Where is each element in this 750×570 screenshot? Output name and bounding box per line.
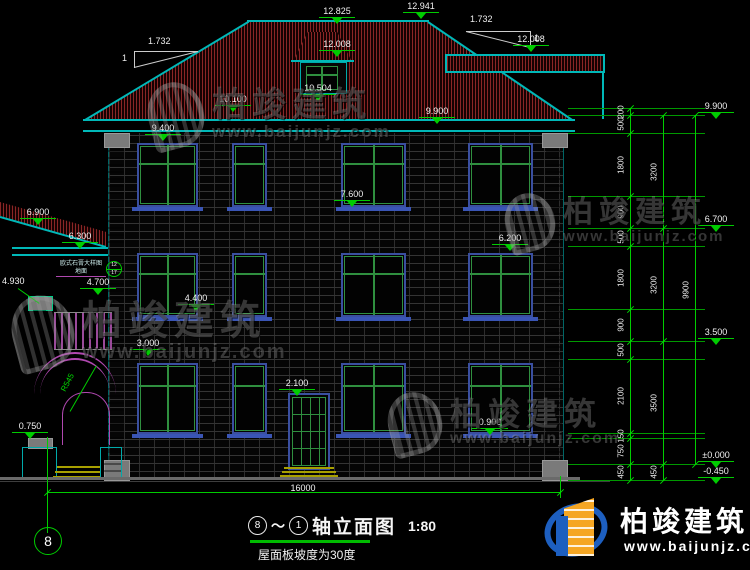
elevation-marker: 0.750	[12, 421, 48, 439]
elevation-value: 3.500	[698, 327, 734, 337]
elevation-marker: 12.825	[319, 6, 355, 24]
elevation-marker: 2.100	[279, 378, 315, 396]
title-axis-end-bubble: 1	[289, 516, 308, 535]
drawing-scale: 1:80	[408, 518, 436, 534]
elevation-value: ±0.000	[698, 450, 734, 460]
watermark-url: www.baijunjz.com	[82, 341, 287, 363]
marker-triangle-icon	[332, 18, 342, 24]
marker-triangle-icon	[332, 51, 342, 57]
watermark-url: www.baijunjz.com	[563, 228, 724, 245]
brand-logo-building-blue	[556, 516, 568, 556]
dim-extension-line	[568, 341, 705, 342]
elevation-value: 12.825	[319, 6, 355, 16]
dim-extension-line	[568, 480, 705, 481]
dim-value: 1800	[617, 156, 626, 174]
bottom-ext-right	[560, 476, 561, 498]
watermark: 柏竣建筑www.baijunjz.com	[388, 392, 620, 454]
brand-url: www.baijunjz.com	[624, 538, 750, 554]
elevation-value: 0.750	[12, 421, 48, 431]
watermark-logo-icon	[140, 76, 211, 154]
dim-value: 200	[617, 105, 626, 118]
dim-value: 3200	[650, 276, 659, 294]
elevation-marker: 6.300	[62, 231, 98, 249]
dim-extension-line	[568, 133, 705, 134]
watermark: 柏竣建筑www.baijunjz.com	[12, 295, 287, 369]
watermark-text: 柏竣建筑www.baijunjz.com	[563, 198, 724, 246]
marker-triangle-icon	[526, 46, 536, 52]
dim-extension-line	[568, 309, 705, 310]
watermark-url: www.baijunjz.com	[212, 122, 391, 141]
marker-triangle-icon	[711, 113, 721, 119]
elevation-value: 9.900	[419, 106, 455, 116]
dim-value: 450	[617, 465, 626, 478]
marker-triangle-icon	[25, 433, 35, 439]
elevation-value: 6.300	[62, 231, 98, 241]
watermark-name: 柏竣建筑	[82, 299, 266, 343]
watermark-logo-icon	[381, 386, 449, 460]
watermark-name: 柏竣建筑	[212, 86, 372, 124]
dim-extension-line	[568, 115, 705, 116]
marker-triangle-icon	[711, 339, 721, 345]
title-axis-start-bubble: 8	[248, 516, 267, 535]
elevation-value: 12.941	[403, 1, 439, 11]
dim-extension-line	[568, 108, 705, 109]
elevation-marker: 12.008	[319, 39, 355, 57]
elevation-value: 6.900	[20, 207, 56, 217]
elevation-drawing-canvas: R545 欧式石膏大样图 地面 12 17 4.930 1.732 1 1.73…	[0, 0, 750, 570]
watermark-text: 柏竣建筑www.baijunjz.com	[450, 398, 620, 448]
dim-chain-line	[695, 115, 696, 464]
watermark: 柏竣建筑www.baijunjz.com	[148, 82, 391, 148]
dim-value: 3500	[650, 394, 659, 412]
dim-extension-line	[568, 464, 705, 465]
dim-chain-line	[630, 108, 631, 480]
dim-value: 500	[617, 343, 626, 356]
elevation-value: 9.900	[698, 101, 734, 111]
marker-triangle-icon	[75, 243, 85, 249]
elevation-marker: 9.900	[419, 106, 455, 124]
brand-block: 柏竣建筑 www.baijunjz.com	[538, 494, 750, 568]
elevation-marker: 3.500	[698, 327, 734, 345]
elevation-marker: 12.941	[403, 1, 439, 19]
elevation-value: 7.600	[334, 189, 370, 199]
elevation-marker: -0.450	[698, 466, 734, 484]
title-note: 屋面板坡度为30度	[258, 546, 355, 563]
dim-value: 500	[617, 117, 626, 130]
elevation-value: -0.450	[698, 466, 734, 476]
elevation-value: 2.100	[279, 378, 315, 388]
dim-extension-line	[568, 359, 705, 360]
marker-triangle-icon	[292, 390, 302, 396]
marker-triangle-icon	[432, 118, 442, 124]
dim-value: 450	[650, 465, 659, 478]
watermark-logo-icon	[3, 288, 82, 376]
title-row: 8 ～ 1 轴立面图 1:80	[248, 512, 436, 539]
watermark-name: 柏竣建筑	[563, 196, 707, 229]
dim-value: 900	[617, 318, 626, 331]
brand-name: 柏竣建筑	[620, 500, 748, 540]
dim-chain-line	[663, 115, 664, 480]
bottom-ext-left	[47, 437, 48, 533]
watermark-text: 柏竣建筑www.baijunjz.com	[212, 88, 391, 142]
watermark-logo-icon	[498, 188, 561, 257]
elevation-marker: 12.008	[513, 34, 549, 52]
dim-value: 9900	[682, 281, 691, 299]
drawing-title: 轴立面图	[312, 512, 396, 539]
title-underline	[250, 540, 370, 543]
marker-triangle-icon	[711, 478, 721, 484]
elevation-marker: 4.700	[80, 277, 116, 295]
dim-value: 3200	[650, 163, 659, 181]
watermark-text: 柏竣建筑www.baijunjz.com	[82, 301, 287, 364]
marker-triangle-icon	[416, 13, 426, 19]
elevation-marker: 7.600	[334, 189, 370, 207]
title-tilde: ～	[271, 516, 285, 536]
watermark: 柏竣建筑www.baijunjz.com	[505, 193, 724, 251]
elevation-marker: 9.900	[698, 101, 734, 119]
marker-triangle-icon	[33, 219, 43, 225]
title-axis-start: 8	[255, 520, 261, 531]
elevation-marker: 6.900	[20, 207, 56, 225]
elevation-value: 12.008	[513, 34, 549, 44]
watermark-name: 柏竣建筑	[450, 396, 602, 432]
marker-triangle-icon	[347, 201, 357, 207]
generated-annotations-layer: 12.82512.94112.00812.00810.10010.5049.90…	[0, 0, 750, 570]
elevation-value: 12.008	[319, 39, 355, 49]
watermark-url: www.baijunjz.com	[450, 430, 620, 447]
dim-value: 1800	[617, 269, 626, 287]
title-axis-end: 1	[296, 520, 302, 531]
elevation-value: 4.700	[80, 277, 116, 287]
